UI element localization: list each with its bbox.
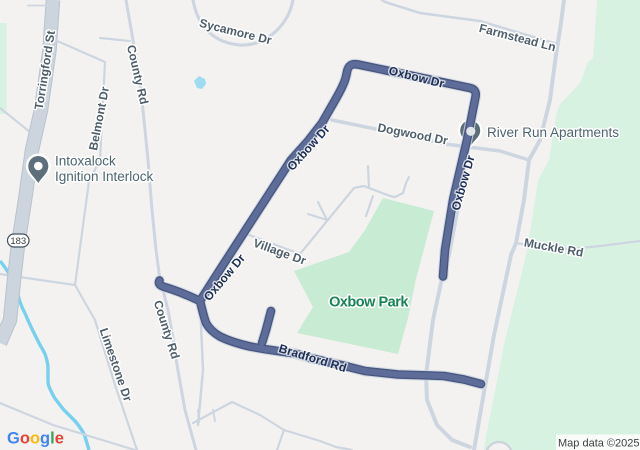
svg-text:Google: Google: [7, 430, 64, 448]
svg-text:Oxbow Park: Oxbow Park: [329, 295, 409, 311]
svg-text:Ignition Interlock: Ignition Interlock: [55, 169, 154, 184]
svg-text:Intoxalock: Intoxalock: [55, 154, 116, 169]
svg-text:River Run Apartments: River Run Apartments: [487, 125, 619, 140]
svg-text:Map data ©2025: Map data ©2025: [558, 438, 640, 450]
svg-text:183: 183: [10, 236, 26, 247]
